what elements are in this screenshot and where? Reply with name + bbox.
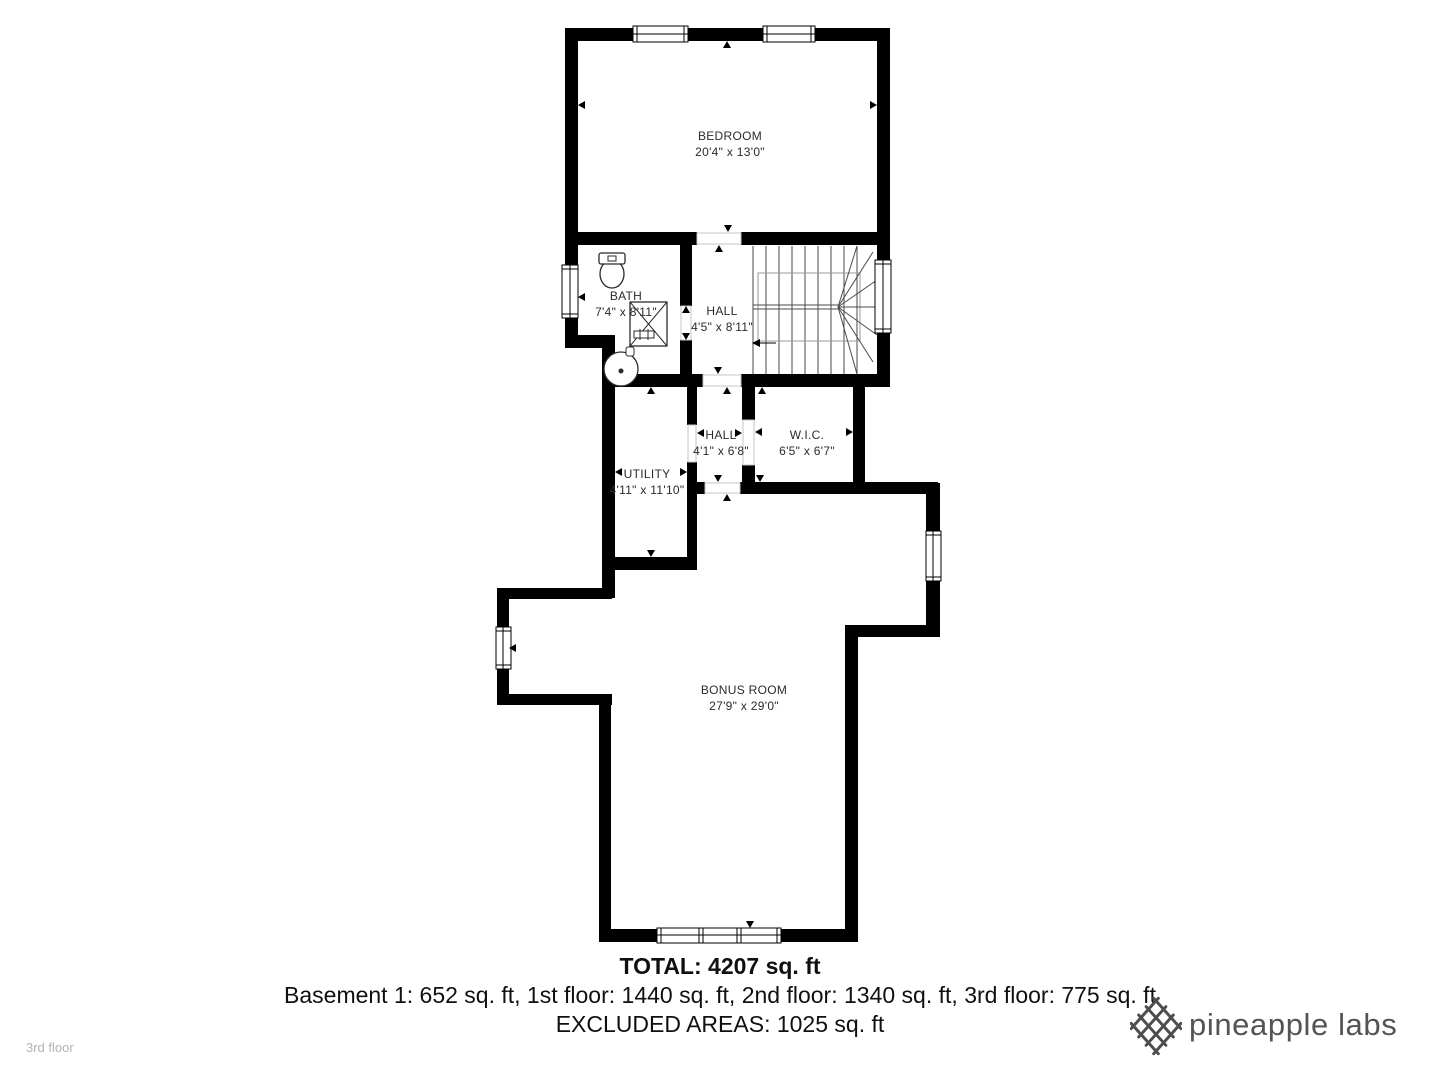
room-label-hall-lower: HALL 4'1" x 6'8" <box>693 427 749 459</box>
room-dims: 7'4" x 8'11" <box>595 304 657 320</box>
room-name: W.I.C. <box>779 427 835 443</box>
room-name: BATH <box>595 288 657 304</box>
room-name: HALL <box>691 303 753 319</box>
room-label-hall-upper: HALL 4'5" x 8'11" <box>691 303 753 335</box>
room-dims: 6'5" x 6'7" <box>779 443 835 459</box>
room-label-wic: W.I.C. 6'5" x 6'7" <box>779 427 835 459</box>
window-bedroom-left <box>633 26 688 42</box>
room-dims: 27'9" x 29'0" <box>701 698 787 714</box>
logo-wordmark: pineapple labs <box>1189 1007 1397 1043</box>
staircase <box>752 246 877 374</box>
floor-plan-drawing <box>0 0 1440 1080</box>
room-dims: 4'1" x 6'8" <box>693 443 749 459</box>
window-bath <box>562 265 578 318</box>
window-bonus-left <box>496 627 511 669</box>
window-bonus-right <box>926 531 941 581</box>
window-bedroom-right <box>763 26 815 42</box>
room-dims: 4'5" x 8'11" <box>691 319 753 335</box>
stair-direction-arrow <box>752 339 776 347</box>
crosshatch-pineapple-icon <box>1130 996 1182 1056</box>
room-label-bonus-room: BONUS ROOM 27'9" x 29'0" <box>701 682 787 714</box>
room-label-bedroom: BEDROOM 20'4" x 13'0" <box>695 128 765 160</box>
toilet-icon <box>599 253 625 288</box>
room-label-bath: BATH 7'4" x 8'11" <box>595 288 657 320</box>
room-label-utility: UTILITY 4'11" x 11'10" <box>610 466 685 498</box>
room-dims: 4'11" x 11'10" <box>610 482 685 498</box>
room-name: BEDROOM <box>695 128 765 144</box>
room-dims: 20'4" x 13'0" <box>695 144 765 160</box>
window-stairs <box>875 260 891 333</box>
window-bonus-bottom <box>657 928 781 943</box>
room-name: BONUS ROOM <box>701 682 787 698</box>
floor-plan-page: BEDROOM 20'4" x 13'0" BATH 7'4" x 8'11" … <box>0 0 1440 1080</box>
room-name: UTILITY <box>610 466 685 482</box>
room-name: HALL <box>693 427 749 443</box>
total-area-text: TOTAL: 4207 sq. ft <box>0 952 1440 981</box>
floor-name-label: 3rd floor <box>26 1040 74 1055</box>
floor-areas-text: Basement 1: 652 sq. ft, 1st floor: 1440 … <box>0 981 1440 1010</box>
